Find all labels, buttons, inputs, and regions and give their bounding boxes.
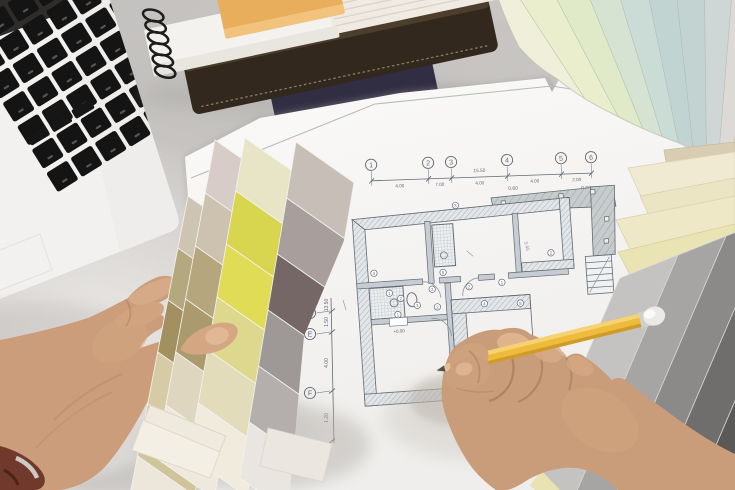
- svg-text:1.50: 1.50: [324, 317, 330, 327]
- svg-text:4.00: 4.00: [395, 183, 405, 188]
- svg-text:3: 3: [449, 159, 453, 166]
- svg-text:4.00: 4.00: [530, 178, 540, 183]
- svg-text:7.00: 7.00: [435, 182, 445, 187]
- svg-text:5: 5: [559, 156, 563, 163]
- svg-text:4.00: 4.00: [324, 358, 330, 368]
- svg-text:13.50: 13.50: [324, 299, 330, 312]
- svg-text:F: F: [308, 391, 312, 398]
- svg-text:E: E: [308, 332, 313, 339]
- svg-text:4: 4: [505, 157, 509, 164]
- svg-text:1: 1: [369, 162, 373, 169]
- svg-text:0.60: 0.60: [508, 186, 518, 192]
- svg-text:+0.00: +0.00: [393, 328, 405, 334]
- svg-text:2: 2: [426, 160, 430, 167]
- svg-text:2.00: 2.00: [572, 177, 582, 182]
- svg-text:15.50: 15.50: [473, 168, 486, 174]
- svg-text:6: 6: [589, 155, 593, 162]
- svg-text:4.00: 4.00: [475, 180, 485, 185]
